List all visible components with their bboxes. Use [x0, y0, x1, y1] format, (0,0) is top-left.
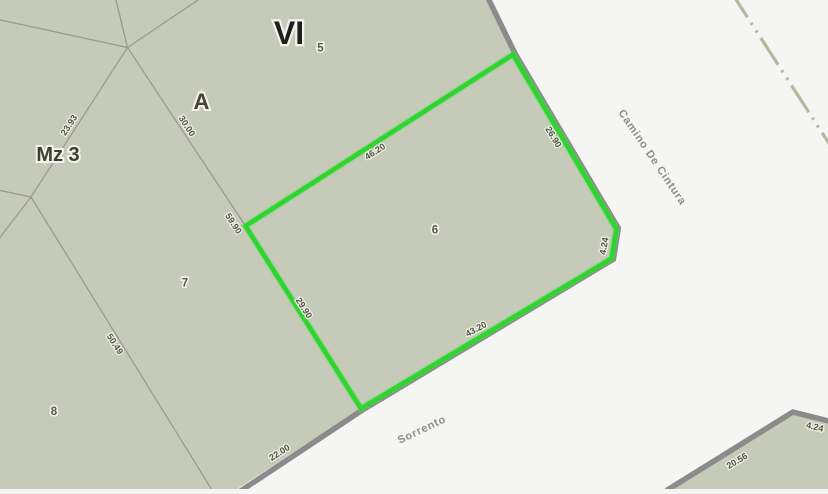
svg-text:Mz 3: Mz 3 — [36, 144, 79, 166]
svg-text:5: 5 — [317, 43, 324, 55]
svg-text:6: 6 — [432, 225, 438, 237]
svg-text:VI: VI — [274, 15, 304, 51]
svg-text:8: 8 — [51, 406, 58, 418]
svg-text:7: 7 — [182, 278, 188, 290]
svg-text:A: A — [194, 89, 210, 114]
